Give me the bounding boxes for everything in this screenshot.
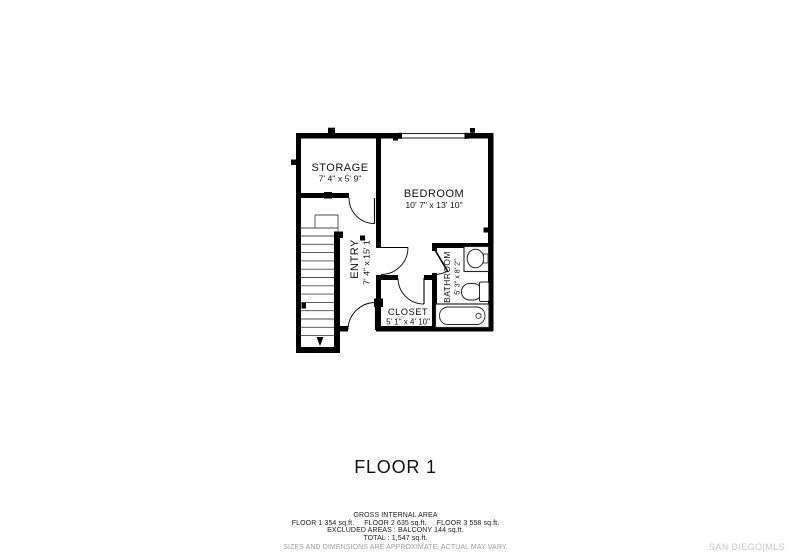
storage-door [349, 198, 375, 224]
bathroom-dims: 5' 3" x 8' 2" [453, 259, 462, 295]
front-door [348, 302, 376, 330]
entry-label: ENTRY [349, 239, 361, 279]
closet-dims: 5' 1" x 4' 10" [386, 318, 430, 327]
floor2-area: FLOOR 2 635 sq.ft. [364, 520, 427, 528]
brand-watermark: SAN DIEGO|MLS [709, 542, 785, 552]
summary-heading: GROSS INTERNAL AREA [0, 512, 791, 520]
bedroom-dims: 10' 7" x 13' 10" [405, 200, 462, 210]
floor-title: FLOOR 1 [0, 457, 791, 478]
bathtub [436, 304, 490, 328]
bedroom-door [381, 248, 408, 275]
sink-vanity [464, 247, 489, 272]
toilet [462, 282, 490, 302]
storage-label: STORAGE [311, 162, 368, 174]
storage-dims: 7' 4" x 5' 9" [319, 174, 362, 184]
area-summary: GROSS INTERNAL AREA FLOOR 1 354 sq.ft.FL… [0, 512, 791, 552]
bathroom-label: BATHROOM [442, 251, 452, 303]
staircase [301, 236, 334, 336]
stair-landing [300, 215, 338, 232]
summary-floor-areas: FLOOR 1 354 sq.ft.FLOOR 2 635 sq.ft.FLOO… [0, 520, 791, 528]
summary-disclaimer: SIZES AND DIMENSIONS ARE APPROXIMATE, AC… [0, 544, 791, 552]
summary-excluded: EXCLUDED AREAS : BALCONY 144 sq.ft. [0, 527, 791, 535]
window [398, 133, 469, 139]
summary-total: TOTAL : 1,547 sq.ft. [0, 535, 791, 543]
entry-dims: 7' 4" x 15' 1" [362, 237, 372, 285]
floor3-area: FLOOR 3 558 sq.ft. [437, 520, 500, 528]
bedroom-label: BEDROOM [404, 188, 464, 200]
stair-direction-arrow [317, 337, 324, 346]
floorplan-page: STORAGE 7' 4" x 5' 9" BEDROOM 10' 7" x 1… [0, 0, 791, 560]
floor1-area: FLOOR 1 354 sq.ft. [292, 520, 355, 528]
closet-door [398, 278, 424, 304]
closet-label: CLOSET [388, 307, 428, 317]
